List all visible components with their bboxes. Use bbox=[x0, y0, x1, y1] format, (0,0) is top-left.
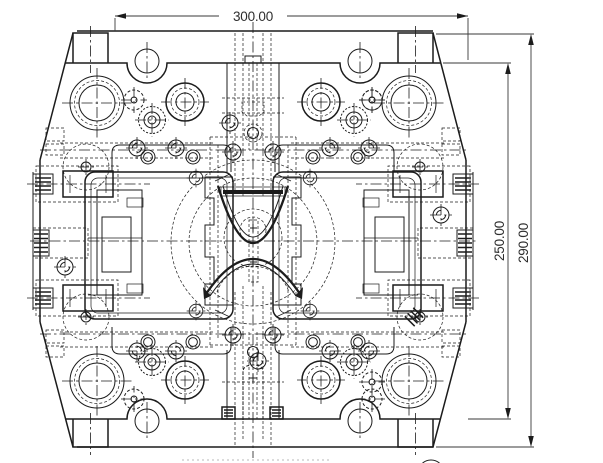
dimension-overall-height-label: 290.00 bbox=[516, 223, 531, 263]
dimension-width: 300.00 bbox=[115, 9, 468, 60]
locating-ring-top-left bbox=[135, 103, 169, 137]
eyebolt-hole-top-left bbox=[135, 42, 159, 80]
guide-bushing-bottom-right bbox=[374, 346, 444, 416]
dimension-plate-height-label: 250.00 bbox=[492, 221, 507, 261]
side-lock-bottom-left bbox=[27, 280, 150, 316]
cad-drawing-viewport: 300.00 250.00 290.00 bbox=[0, 0, 603, 463]
bolt-bottom-left bbox=[161, 356, 209, 404]
bolt-bottom-right bbox=[297, 356, 345, 404]
eyebolt-hole-top-right bbox=[348, 42, 372, 80]
bolt-top-left bbox=[161, 78, 209, 126]
eyebolt-hole-bottom-right bbox=[348, 402, 372, 440]
bolt-top-right bbox=[297, 78, 345, 126]
locating-ring-bottom-left bbox=[135, 345, 169, 379]
cavity-block-left bbox=[85, 172, 233, 319]
center-lock-right bbox=[418, 228, 473, 258]
side-lock-bottom-right bbox=[356, 280, 479, 316]
dimension-plate-height: 250.00 bbox=[443, 63, 511, 419]
center-lock-left bbox=[33, 228, 88, 258]
guide-bushing-top-left bbox=[62, 68, 132, 138]
dimension-overall-height: 290.00 bbox=[436, 34, 534, 447]
mold-base-plan-drawing: 300.00 250.00 290.00 bbox=[0, 0, 603, 463]
dimension-width-label: 300.00 bbox=[233, 9, 273, 24]
guide-bushing-bottom-left bbox=[62, 346, 132, 416]
guide-bushing-top-right bbox=[374, 68, 444, 138]
